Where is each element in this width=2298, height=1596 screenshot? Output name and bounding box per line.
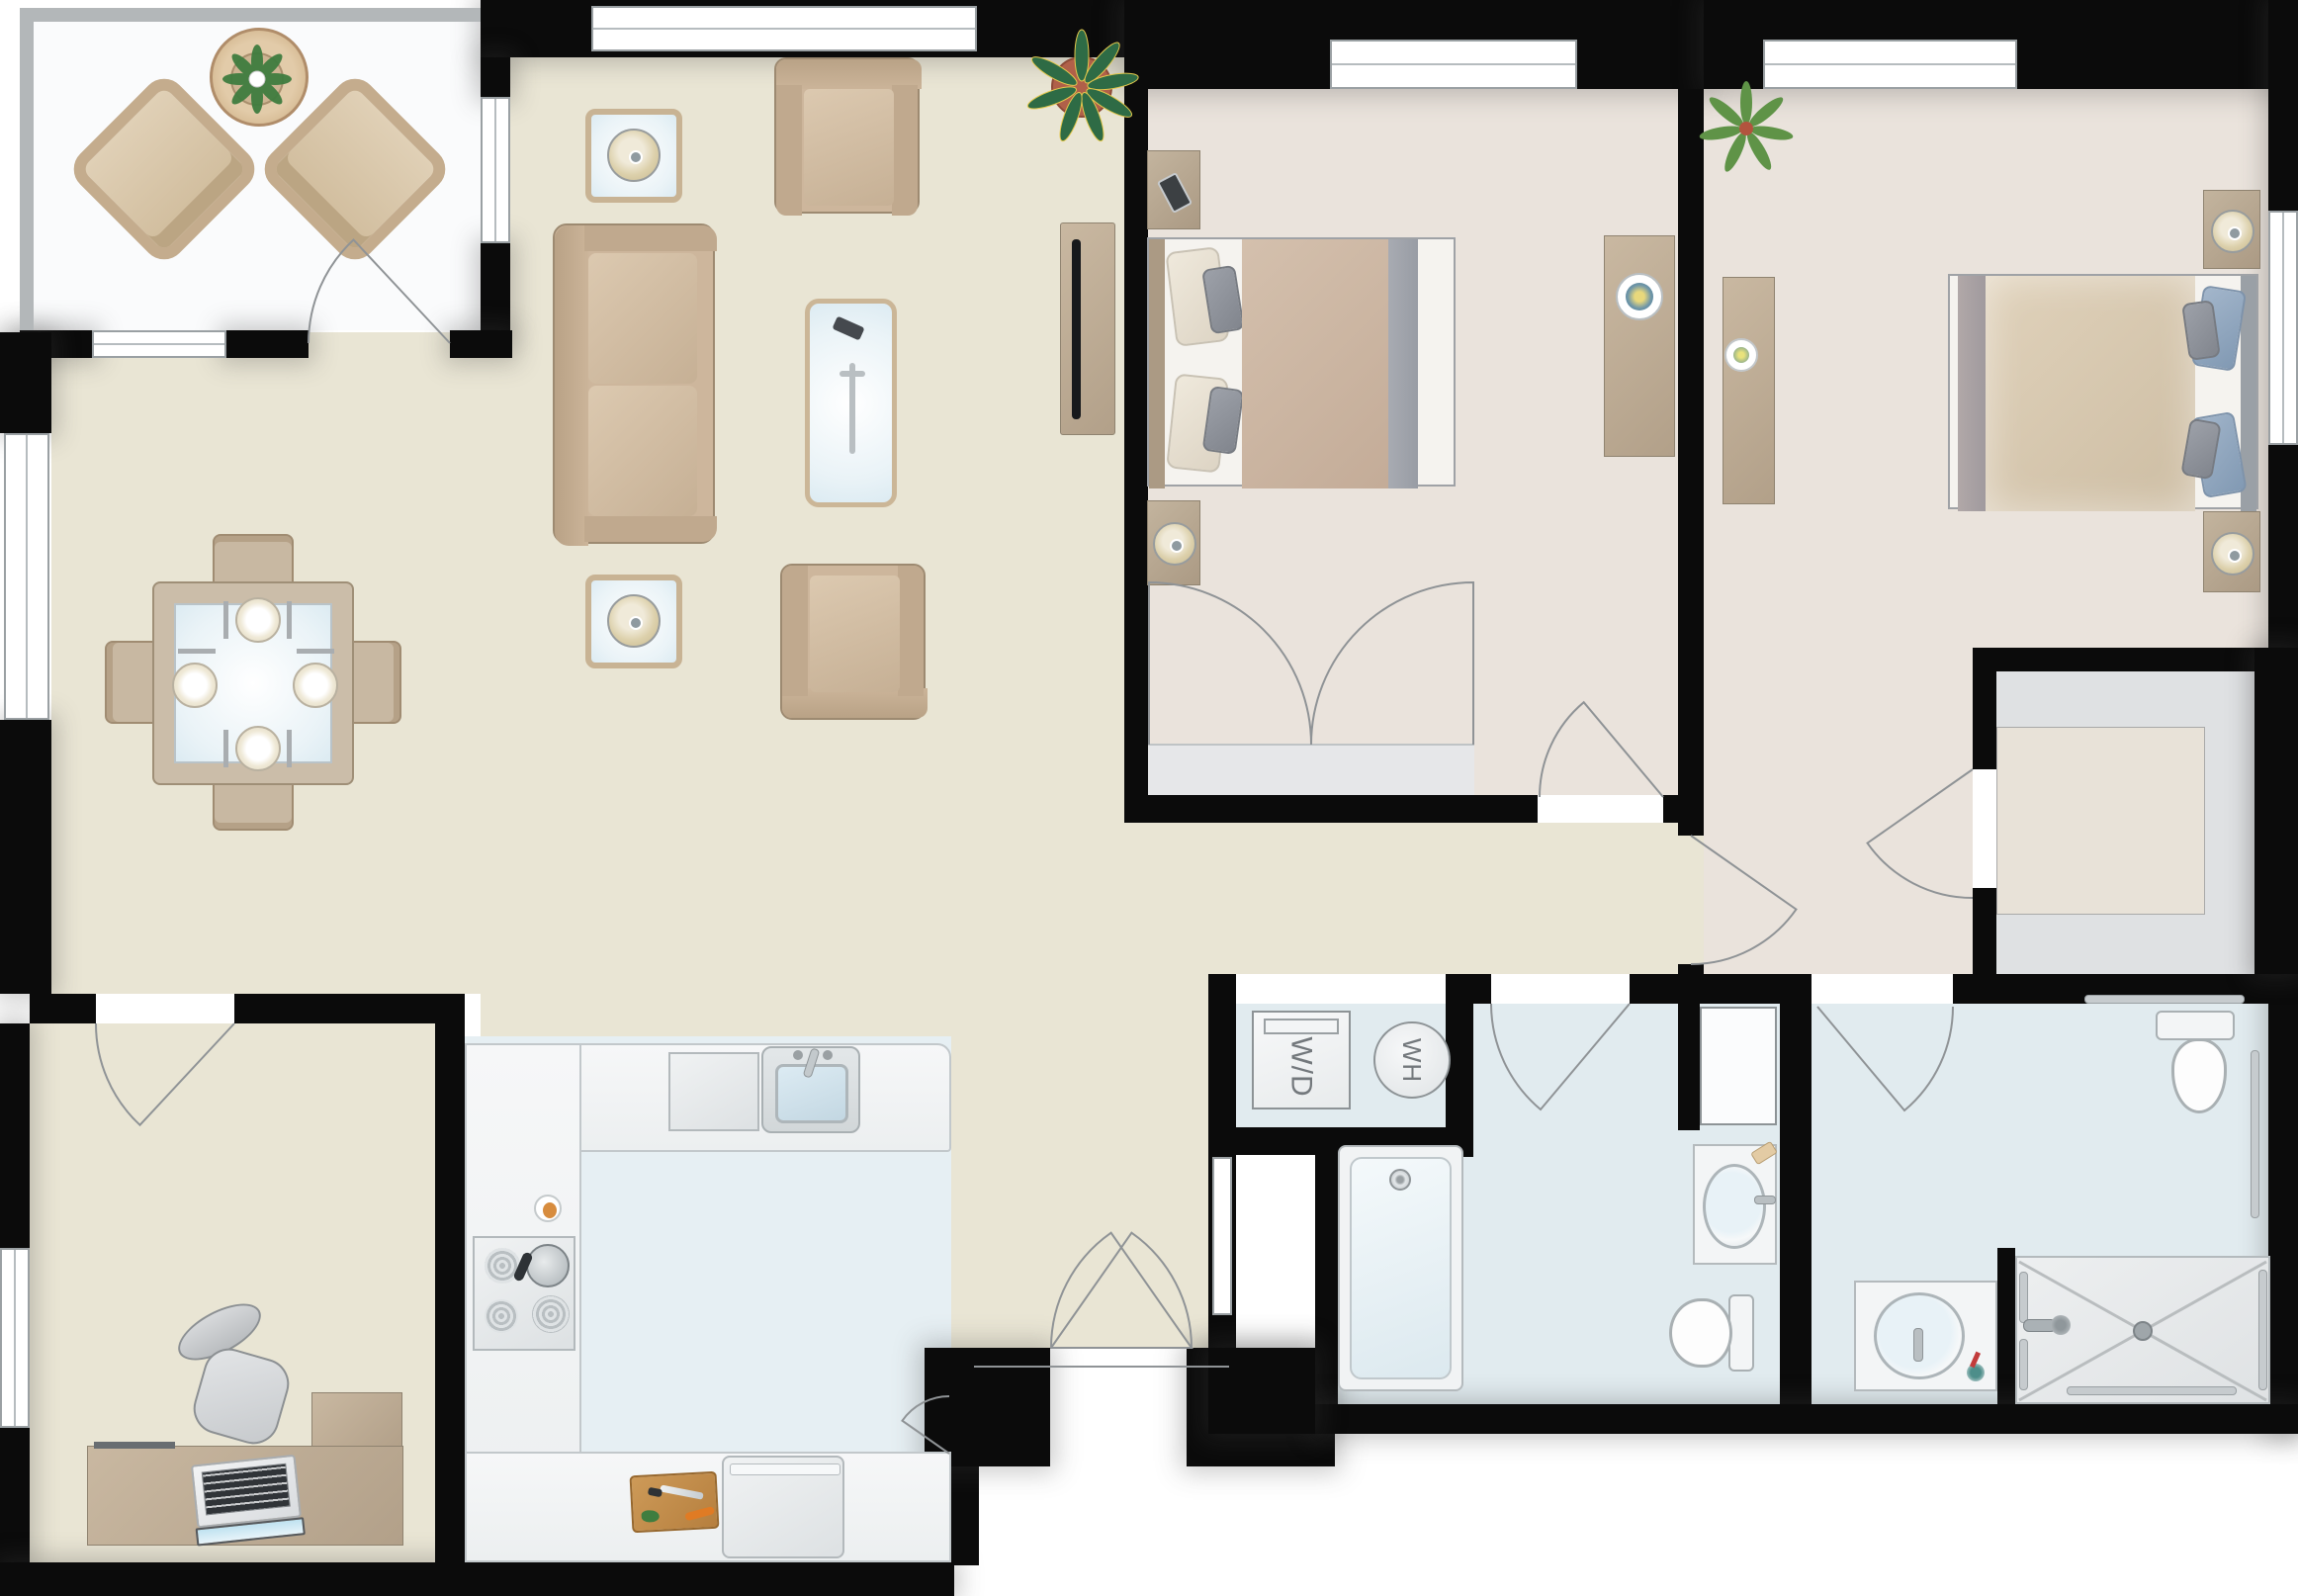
soap-bar [1750,1141,1778,1166]
toilet [1669,1290,1754,1377]
wall [1973,648,2270,671]
wall [925,1348,1050,1466]
wall [1446,1004,1473,1157]
phone-icon [1157,172,1193,214]
grab-bar [2251,1050,2259,1218]
grab-bar [2258,1270,2267,1390]
entry-floor [949,1036,1231,1348]
grab-bar [2019,1272,2028,1323]
bed-runner [1388,239,1418,488]
candle [1724,338,1758,372]
sofa [553,223,715,544]
sofa-arm [584,516,717,542]
hallway-floor [1124,974,1208,1036]
candle-wick [1733,347,1749,363]
window [591,6,977,51]
armchair-seat [804,89,894,206]
carrot [684,1506,715,1521]
wall [0,720,51,994]
cutting-board [630,1471,720,1534]
toilet-bowl [1669,1298,1732,1368]
wall [1663,795,1704,823]
egg-plate [534,1195,562,1222]
wall [1208,1348,1315,1434]
sofa-back [555,225,588,546]
dresser-lamp-shade [1626,283,1653,310]
fridge-handle [730,1463,840,1475]
hallway-floor [1124,823,1704,974]
place-setting-plate [235,597,281,643]
wall [1997,1248,2015,1404]
window [1763,40,2017,89]
dresser-lamp [1616,273,1663,320]
toilet-tank [2156,1011,2235,1040]
laptop-keyboard [202,1463,291,1516]
wall [0,1562,954,1596]
wall [481,57,510,97]
knife-icon [660,1484,704,1499]
faucet [1913,1328,1923,1362]
knife-handle [648,1487,663,1498]
flat-tv-icon [1072,239,1081,419]
balcony-railing [20,8,34,330]
burner [485,1299,518,1333]
table-lamp [2211,532,2254,576]
desk-return [311,1392,402,1450]
faucet-handle [793,1050,803,1060]
linen-closet [1700,1007,1777,1125]
place-setting-plate [172,663,218,708]
bed-runner [1958,276,1986,511]
stove [473,1236,575,1351]
armchair-arm [776,85,802,216]
lamp-finial [629,150,643,164]
bathroom-vanity [1854,1281,1997,1391]
lamp-finial [1170,539,1184,553]
toothbrush-cup [1967,1364,1985,1381]
sofa-arm [584,225,717,251]
balcony-table [210,28,309,127]
egg [543,1202,557,1218]
wall [1630,974,1780,1004]
window [4,433,49,720]
armchair-arm [898,566,924,696]
window [481,97,510,243]
sink-oval [1703,1164,1766,1249]
sofa-cushion [588,253,697,384]
laptop-icon [189,1454,306,1548]
fork-icon [297,649,334,654]
bed [1147,237,1456,487]
wall [1315,1142,1338,1409]
floor-plan: W/D WH [0,0,2298,1596]
window [92,330,226,358]
lamp-finial [629,616,643,630]
wall [435,1023,465,1562]
place-setting-plate [293,663,338,708]
wall [1124,795,1538,823]
table-lamp [2211,210,2254,253]
bedroom1-closet-floor [1148,744,1474,795]
table-lamp [607,594,661,648]
wall [481,243,510,332]
blanket [1986,276,2195,511]
wall [1780,974,1812,1434]
tub-faucet [1389,1169,1411,1191]
grab-bar [2067,1386,2237,1395]
doorway-floor [1678,836,1704,964]
wall [234,994,465,1023]
wall [1953,974,1973,1004]
wall [1446,974,1491,1004]
tv-console [1060,222,1115,435]
wall [1678,89,1704,836]
bathroom-vanity [1693,1144,1777,1265]
dining-table [152,581,354,785]
window [1330,40,1577,89]
armchair-seat [810,576,900,692]
desk-edge [94,1442,175,1449]
headboard [1149,239,1165,488]
kettle [526,1244,570,1287]
dresser [1604,235,1675,457]
lamp-finial [2228,226,2242,240]
blanket [1242,239,1404,488]
armchair-arm [892,85,918,216]
wall [450,330,512,358]
greens [641,1510,660,1523]
armchair-arm [782,566,808,696]
faucet-handle [823,1050,833,1060]
shower-head-face [2051,1315,2071,1335]
bedroom2-hall-floor [1704,648,1973,974]
laundry-pocket-door [1212,1157,1232,1315]
knife-icon [287,601,292,639]
kitchen-sink [761,1046,860,1133]
table-lamp [607,129,661,182]
wall [30,994,96,1023]
nightstand [1147,150,1200,229]
lamp-finial [2228,549,2242,563]
wall [1315,1404,2298,1434]
table-base [849,363,855,454]
burner [532,1295,570,1333]
wall [1678,1004,1700,1130]
wall [224,330,309,358]
tv-remote [832,316,864,341]
wall [2254,648,2298,974]
fork-icon [223,601,228,639]
armchair [780,564,926,720]
fork-icon [178,649,216,654]
knife-icon [287,730,292,767]
grab-bar [2019,1339,2028,1390]
washer-dryer-label: W/D [1254,1026,1349,1108]
sofa-cushion [588,386,697,516]
wall [0,332,51,433]
dresser [1723,277,1775,504]
window [0,1248,30,1428]
faucet [1754,1196,1776,1204]
table-lamp [1153,522,1196,566]
balcony-railing [20,8,481,22]
bed [1948,274,2258,509]
grab-bar [2084,995,2245,1004]
fork-icon [223,730,228,767]
wall [1973,648,1996,769]
bathtub [1338,1145,1463,1391]
coffee-table [805,299,897,507]
armchair [774,57,920,214]
walkin-closet-floor [1996,727,2205,915]
washer-dryer-unit: W/D [1252,1011,1351,1109]
place-setting-plate [235,726,281,771]
refrigerator [722,1456,844,1558]
dishwasher [668,1052,759,1131]
wall [1124,57,1148,795]
water-heater-label: WH [1375,1023,1449,1097]
window [2268,211,2298,445]
water-heater-unit: WH [1373,1021,1451,1099]
